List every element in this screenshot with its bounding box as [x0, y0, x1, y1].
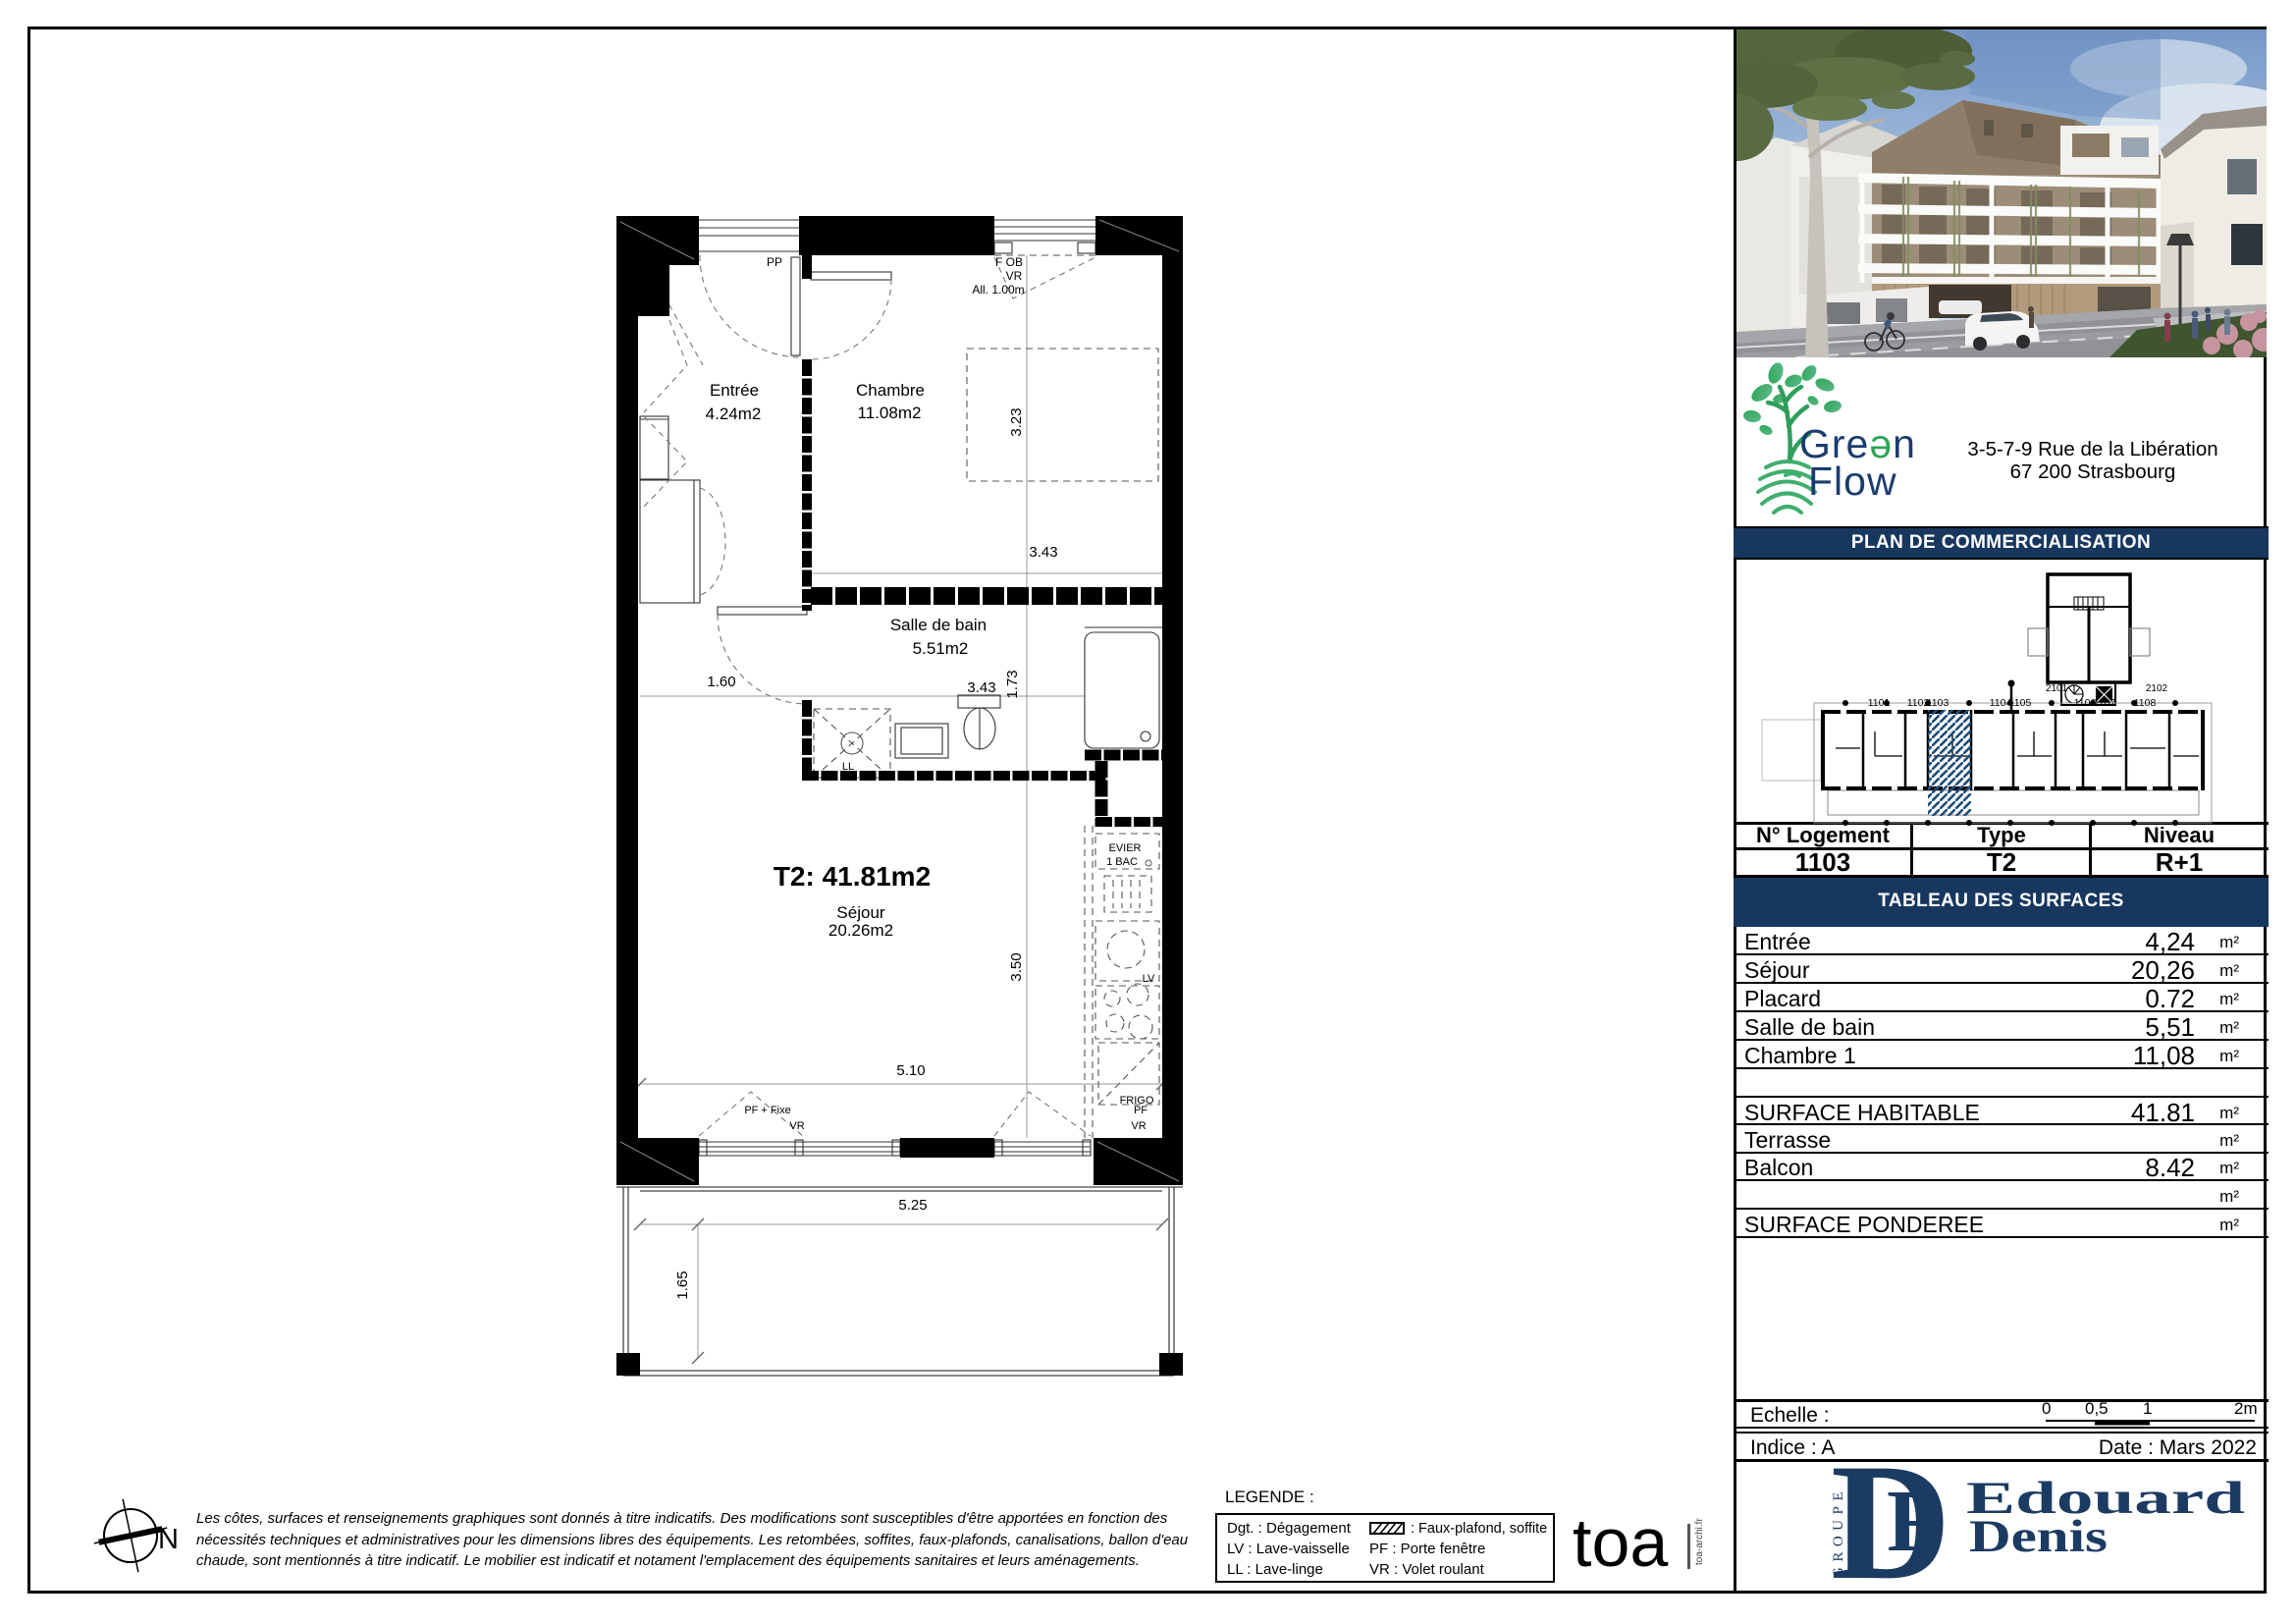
svg-text:4.24m2: 4.24m2 — [706, 405, 762, 423]
svg-text:0: 0 — [2042, 1399, 2051, 1418]
svg-text:N: N — [158, 1524, 179, 1555]
svg-text:11.08m2: 11.08m2 — [858, 404, 922, 422]
svg-text:2101: 2101 — [2046, 683, 2068, 694]
svg-text:20.26m2: 20.26m2 — [828, 921, 893, 940]
svg-text:EVIER: EVIER — [1108, 842, 1141, 854]
svg-text:1.60: 1.60 — [707, 674, 735, 690]
svg-text:T2: 41.81m2: T2: 41.81m2 — [774, 861, 931, 892]
svg-text:VR: VR — [1006, 269, 1023, 283]
svg-text:Chambre: Chambre — [856, 381, 925, 400]
svg-text:5.51m2: 5.51m2 — [913, 639, 969, 658]
svg-text:PF + Fixe: PF + Fixe — [744, 1105, 790, 1116]
svg-text:3.50: 3.50 — [1008, 952, 1025, 981]
svg-text:Entrée: Entrée — [710, 381, 759, 400]
svg-text:5.25: 5.25 — [898, 1197, 927, 1214]
svg-text:2102: 2102 — [2146, 683, 2168, 694]
svg-text:3.23: 3.23 — [1008, 407, 1025, 436]
svg-text:All. 1.00m: All. 1.00m — [972, 283, 1024, 297]
svg-text:1108: 1108 — [2134, 697, 2157, 709]
svg-text:0,5: 0,5 — [2085, 1399, 2109, 1418]
svg-text:5.10: 5.10 — [896, 1062, 925, 1079]
svg-text:VR: VR — [789, 1120, 804, 1132]
svg-text:VR: VR — [1131, 1120, 1146, 1132]
svg-text:LV: LV — [1143, 973, 1155, 985]
svg-text:3.43: 3.43 — [1029, 544, 1057, 561]
svg-text:1107: 1107 — [2094, 697, 2116, 709]
svg-text:1.65: 1.65 — [674, 1271, 691, 1299]
svg-text:PP: PP — [767, 255, 782, 269]
svg-text:3.43: 3.43 — [967, 679, 995, 696]
svg-text:1 BAC: 1 BAC — [1106, 856, 1138, 868]
svg-text:LL: LL — [842, 761, 854, 773]
svg-text:1.73: 1.73 — [1004, 670, 1021, 698]
svg-text:PF: PF — [1134, 1105, 1148, 1116]
svg-text:F OB: F OB — [995, 255, 1023, 269]
svg-text:1: 1 — [2143, 1399, 2152, 1418]
svg-text:Séjour: Séjour — [836, 903, 884, 922]
svg-text:Salle de bain: Salle de bain — [890, 616, 987, 634]
svg-text:2m: 2m — [2234, 1399, 2258, 1418]
